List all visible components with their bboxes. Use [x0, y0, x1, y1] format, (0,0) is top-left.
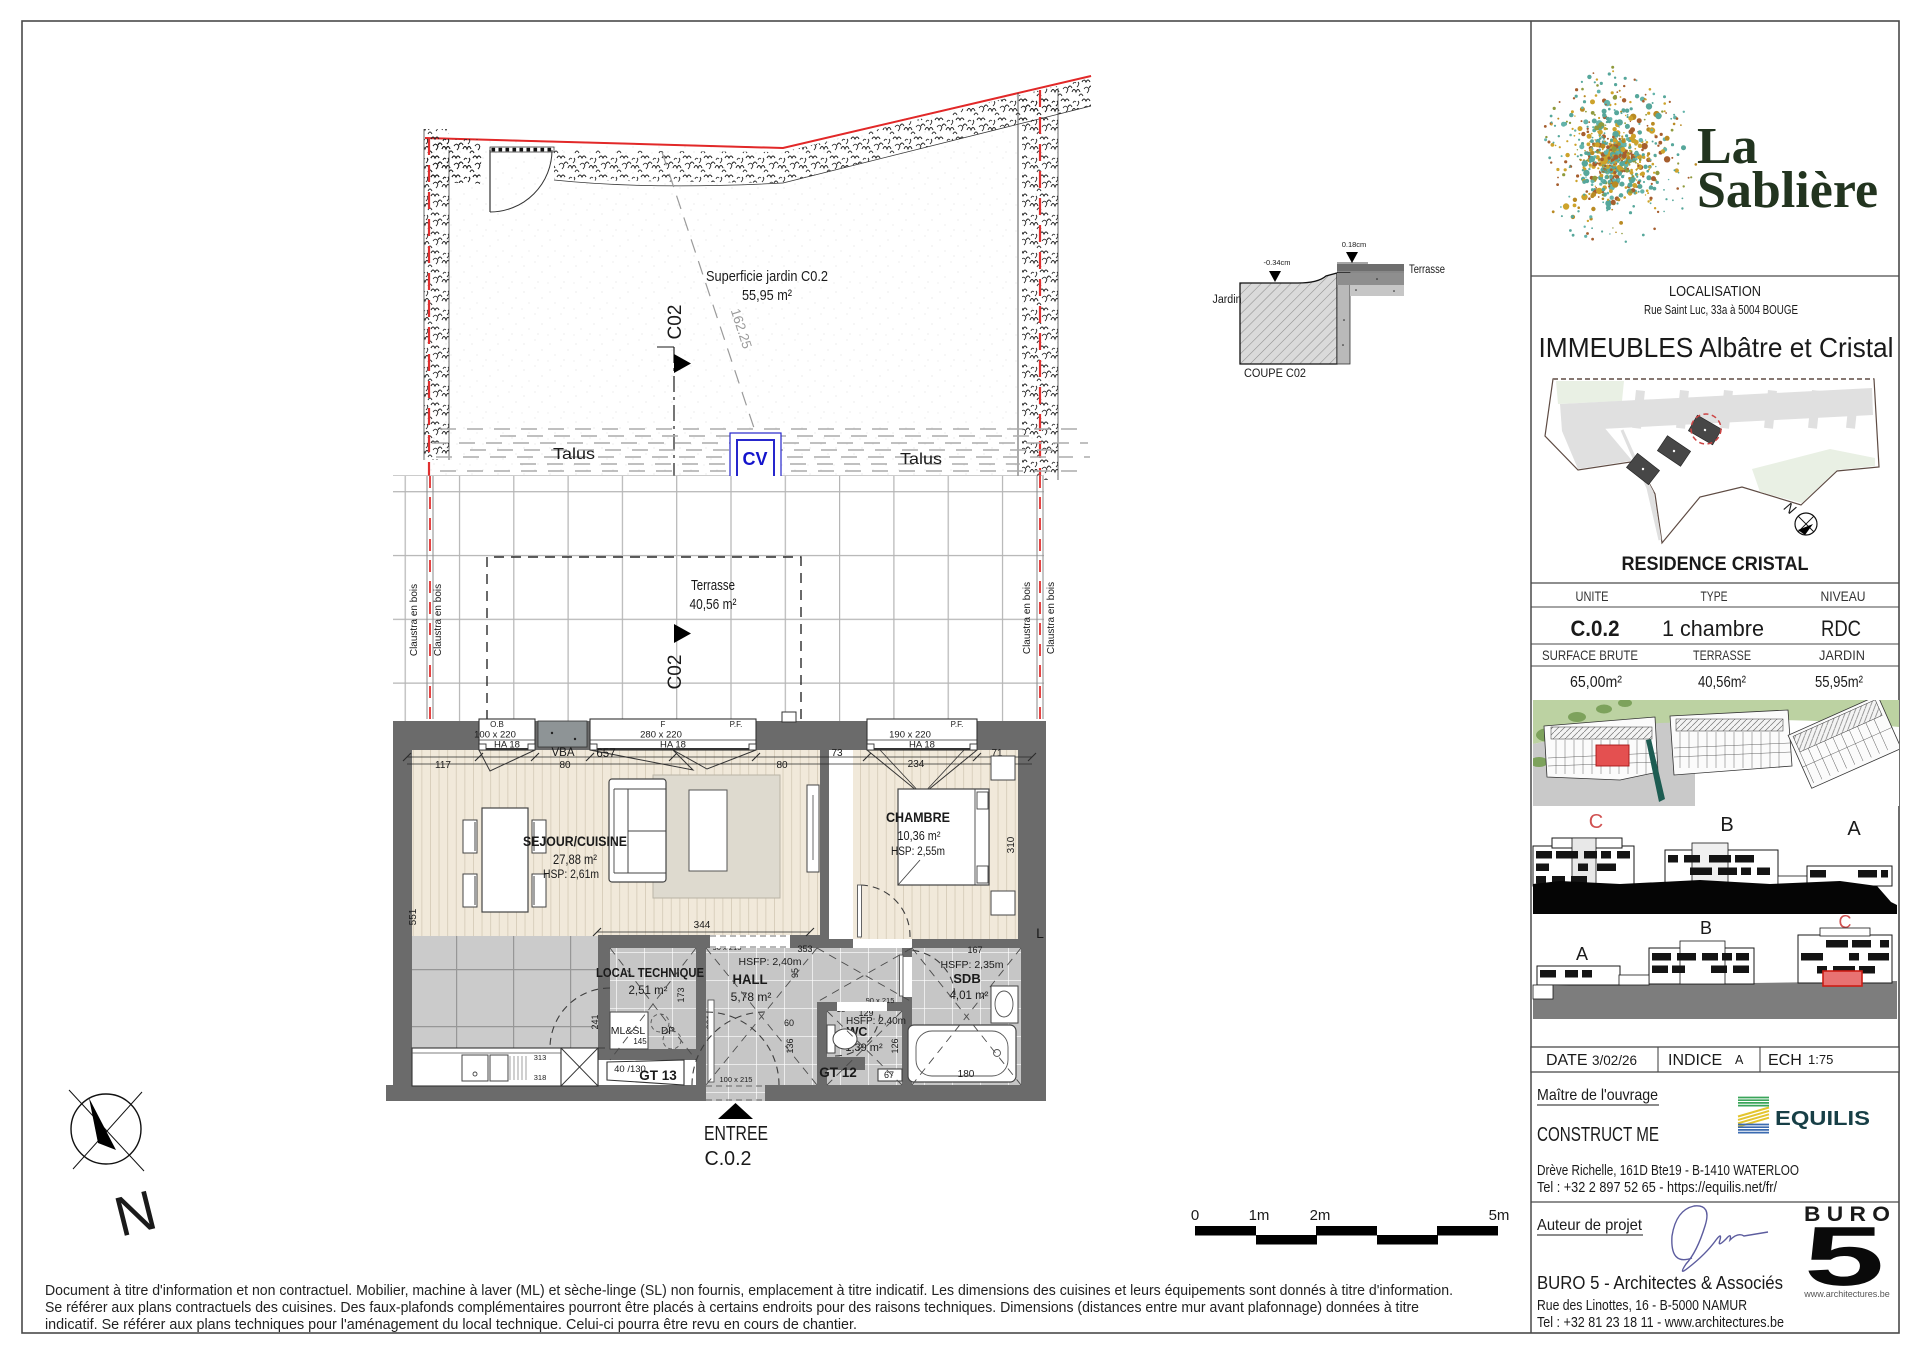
svg-text:RDC: RDC [1821, 616, 1861, 641]
svg-text:173: 173 [676, 987, 686, 1002]
svg-text:Sablière: Sablière [1697, 162, 1878, 219]
svg-text:1m: 1m [1249, 1207, 1270, 1224]
svg-text:5m: 5m [1489, 1207, 1510, 1224]
svg-text:Terrasse: Terrasse [691, 577, 735, 594]
svg-text:Rue des Linottes, 16 - B-5000: Rue des Linottes, 16 - B-5000 NAMUR [1537, 1298, 1747, 1314]
svg-text:SDB: SDB [953, 971, 980, 986]
svg-text:Maître de l'ouvrage: Maître de l'ouvrage [1537, 1087, 1658, 1104]
svg-text:27,88 m²: 27,88 m² [553, 852, 597, 867]
svg-text:HSFP: 2,35m: HSFP: 2,35m [940, 959, 1003, 971]
svg-text:HA 18: HA 18 [494, 740, 520, 751]
svg-text:126: 126 [890, 1038, 900, 1053]
svg-text:L: L [1036, 925, 1044, 941]
svg-text:C02: C02 [665, 305, 686, 340]
svg-text:145: 145 [633, 1037, 647, 1046]
svg-text:1 chambre: 1 chambre [1662, 616, 1764, 641]
svg-text:73: 73 [831, 748, 843, 759]
svg-text:Superficie jardin C0.2: Superficie jardin C0.2 [706, 268, 828, 285]
svg-text:F: F [661, 720, 666, 729]
svg-text:0: 0 [1191, 1207, 1199, 1224]
svg-text:ENTREE: ENTREE [704, 1123, 768, 1145]
svg-text:551: 551 [408, 908, 419, 925]
svg-text:310: 310 [1006, 836, 1017, 853]
svg-text:HA 18: HA 18 [909, 740, 935, 751]
svg-text:DATE: DATE [1546, 1052, 1587, 1069]
svg-text:3/02/26: 3/02/26 [1592, 1053, 1637, 1068]
svg-text:ML&SL: ML&SL [611, 1025, 646, 1037]
svg-text:DP: DP [661, 1026, 675, 1037]
svg-text:313: 313 [534, 1053, 547, 1062]
svg-text:Tel : +32 2 897 52 65 - https:: Tel : +32 2 897 52 65 - https://equilis.… [1537, 1180, 1778, 1196]
svg-text:318: 318 [534, 1073, 547, 1082]
svg-text:EQUILIS: EQUILIS [1775, 1108, 1870, 1130]
svg-text:5,78 m²: 5,78 m² [731, 990, 772, 1004]
svg-text:HSP: 2,55m: HSP: 2,55m [891, 846, 945, 858]
svg-text:SEJOUR/CUISINE: SEJOUR/CUISINE [523, 833, 627, 849]
svg-text:80: 80 [776, 760, 788, 771]
svg-text:HSP: 2,61m: HSP: 2,61m [543, 869, 599, 881]
svg-text:2m: 2m [1310, 1207, 1331, 1224]
svg-text:95: 95 [790, 968, 800, 978]
svg-text:GT 13: GT 13 [639, 1068, 677, 1083]
svg-text:O.B: O.B [490, 720, 504, 729]
svg-text:Document à titre d'information: Document à titre d'information et non co… [45, 1283, 1453, 1299]
svg-text:Jardin: Jardin [1213, 294, 1242, 306]
svg-text:LOCALISATION: LOCALISATION [1669, 283, 1761, 300]
svg-text:0.18cm: 0.18cm [1342, 240, 1367, 249]
svg-text:60: 60 [784, 1018, 794, 1028]
svg-text:117: 117 [435, 760, 451, 771]
svg-text:VBA: VBA [551, 747, 574, 759]
svg-text:NIVEAU: NIVEAU [1821, 588, 1866, 604]
svg-text:C.0.2: C.0.2 [1571, 616, 1620, 641]
svg-text:C: C [1589, 811, 1603, 833]
svg-text:Claustra en bois: Claustra en bois [1046, 582, 1057, 654]
svg-text:BURO 5 - Architectes & Associé: BURO 5 - Architectes & Associés [1537, 1273, 1783, 1293]
svg-text:Rue Saint Luc, 33a à 5004 BOUG: Rue Saint Luc, 33a à 5004 BOUGE [1644, 303, 1798, 317]
svg-text:241: 241 [590, 1014, 600, 1029]
svg-text:100 x 215: 100 x 215 [720, 1075, 753, 1084]
svg-text:JARDIN: JARDIN [1819, 647, 1865, 663]
svg-text:55,95 m²: 55,95 m² [742, 287, 792, 304]
svg-text:TERRASSE: TERRASSE [1693, 647, 1751, 663]
svg-text:234: 234 [908, 759, 925, 770]
svg-text:COUPE C02: COUPE C02 [1244, 366, 1306, 380]
svg-text:1:75: 1:75 [1808, 1052, 1833, 1067]
svg-text:Claustra en bois: Claustra en bois [433, 584, 444, 656]
svg-text:ECH: ECH [1768, 1052, 1802, 1069]
svg-text:-0.34cm: -0.34cm [1263, 258, 1290, 267]
svg-text:Claustra en bois: Claustra en bois [1022, 582, 1033, 654]
svg-text:P.F.: P.F. [951, 720, 964, 729]
svg-text:A: A [1735, 1053, 1744, 1067]
svg-text:40,56 m²: 40,56 m² [690, 596, 737, 613]
svg-text:Talus: Talus [553, 446, 595, 463]
svg-text:P.F.: P.F. [730, 720, 743, 729]
svg-text:55,95m²: 55,95m² [1815, 674, 1864, 691]
svg-text:SURFACE BRUTE: SURFACE BRUTE [1542, 647, 1638, 663]
svg-text:353: 353 [797, 944, 812, 954]
svg-text:Drève Richelle, 161D Bte19 - B: Drève Richelle, 161D Bte19 - B-1410 WATE… [1537, 1163, 1799, 1179]
svg-text:80: 80 [559, 760, 571, 771]
svg-text:167: 167 [967, 945, 982, 955]
svg-text:344: 344 [694, 920, 711, 931]
svg-text:CV: CV [742, 449, 767, 469]
svg-text:65,00m²: 65,00m² [1570, 674, 1623, 691]
svg-text:B: B [1700, 918, 1712, 938]
svg-text:UNITE: UNITE [1576, 588, 1609, 604]
svg-text:HSFP: 2,40m: HSFP: 2,40m [738, 956, 801, 968]
svg-text:TYPE: TYPE [1701, 588, 1728, 604]
svg-text:A: A [1847, 818, 1861, 840]
svg-text:Tel : +32 81 23 18 11 - www.ar: Tel : +32 81 23 18 11 - www.architecture… [1537, 1315, 1784, 1331]
svg-text:RESIDENCE CRISTAL: RESIDENCE CRISTAL [1622, 554, 1809, 575]
svg-text:LOCAL TECHNIQUE: LOCAL TECHNIQUE [596, 966, 704, 980]
svg-text:CONSTRUCT ME: CONSTRUCT ME [1537, 1124, 1659, 1146]
svg-text:C02: C02 [665, 655, 686, 690]
svg-text:180: 180 [958, 1069, 975, 1080]
svg-text:B: B [1720, 814, 1733, 836]
svg-text:indicatif. Se référer aux plan: indicatif. Se référer aux plans techniqu… [45, 1317, 857, 1333]
svg-text:CHAMBRE: CHAMBRE [886, 809, 950, 825]
svg-text:Claustra en bois: Claustra en bois [409, 584, 420, 656]
svg-text:10,36 m²: 10,36 m² [898, 828, 942, 843]
svg-text:Talus: Talus [900, 451, 942, 468]
svg-text:A: A [1576, 944, 1588, 964]
svg-text:C.0.2: C.0.2 [705, 1148, 752, 1170]
svg-text:www.architectures.be: www.architectures.be [1803, 1289, 1890, 1299]
svg-text:HA 18: HA 18 [660, 740, 686, 751]
svg-text:40,56m²: 40,56m² [1698, 674, 1747, 691]
svg-text:Auteur de projet: Auteur de projet [1537, 1217, 1643, 1234]
svg-text:GT 12: GT 12 [819, 1065, 857, 1080]
svg-text:2,51 m²: 2,51 m² [629, 985, 668, 997]
svg-text:HALL: HALL [733, 971, 768, 987]
svg-text:Se référer aux plans contractu: Se référer aux plans contractuels des cu… [45, 1300, 1419, 1316]
svg-text:INDICE: INDICE [1668, 1052, 1722, 1069]
svg-text:657: 657 [596, 748, 615, 760]
svg-text:IMMEUBLES Albâtre et Cristal: IMMEUBLES Albâtre et Cristal [1539, 332, 1894, 363]
svg-text:Terrasse: Terrasse [1409, 264, 1445, 276]
